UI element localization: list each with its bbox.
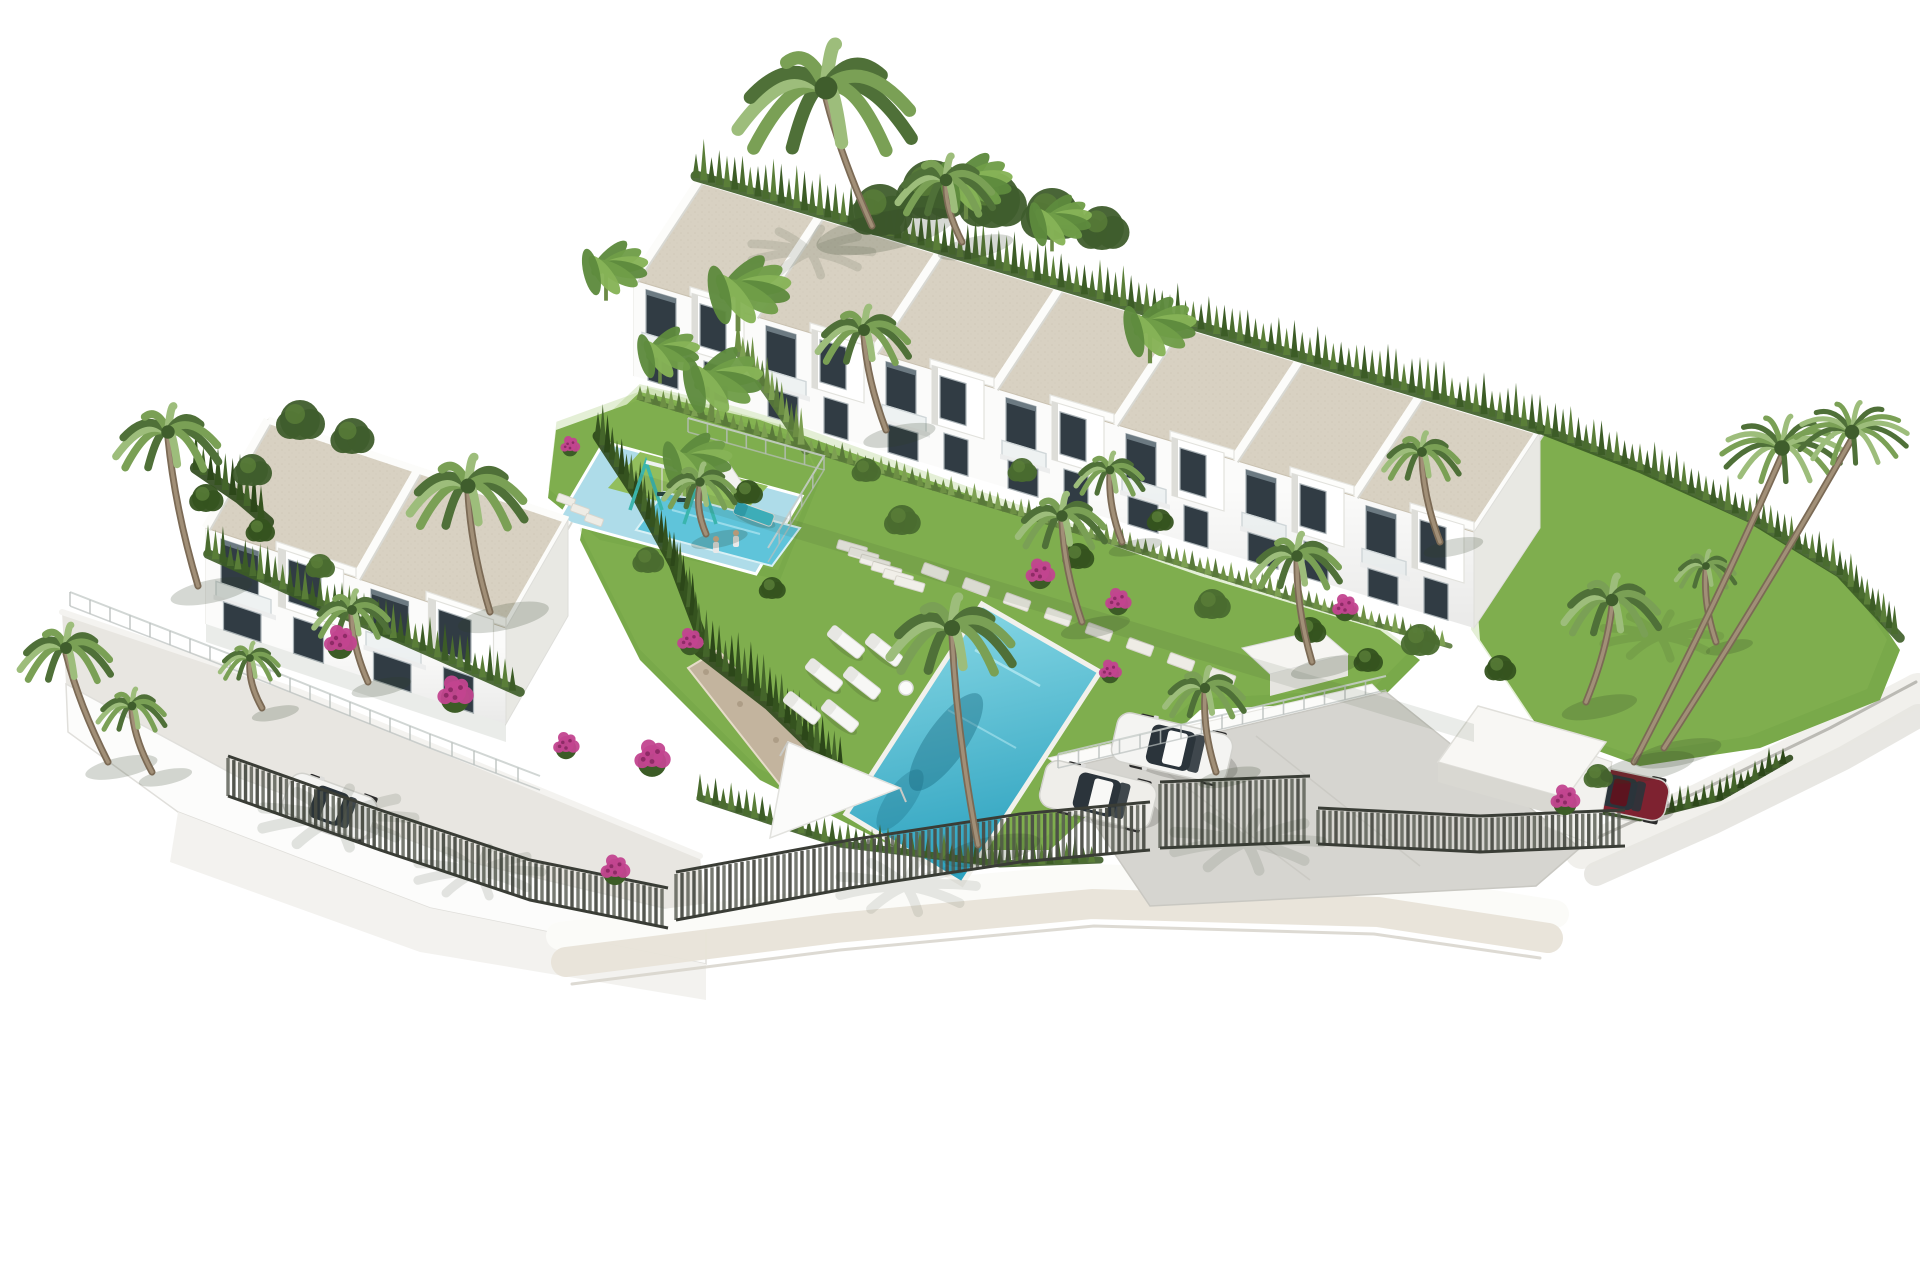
- bougainvillea-bush: [634, 740, 670, 777]
- architectural-render: Aerial 3D architectural rendering of a w…: [0, 0, 1920, 1280]
- garden-bush: [276, 400, 325, 440]
- garden-bush: [330, 418, 374, 454]
- render-canvas: [0, 0, 1920, 1280]
- bougainvillea-bush: [553, 732, 579, 759]
- pool-table: [899, 681, 913, 695]
